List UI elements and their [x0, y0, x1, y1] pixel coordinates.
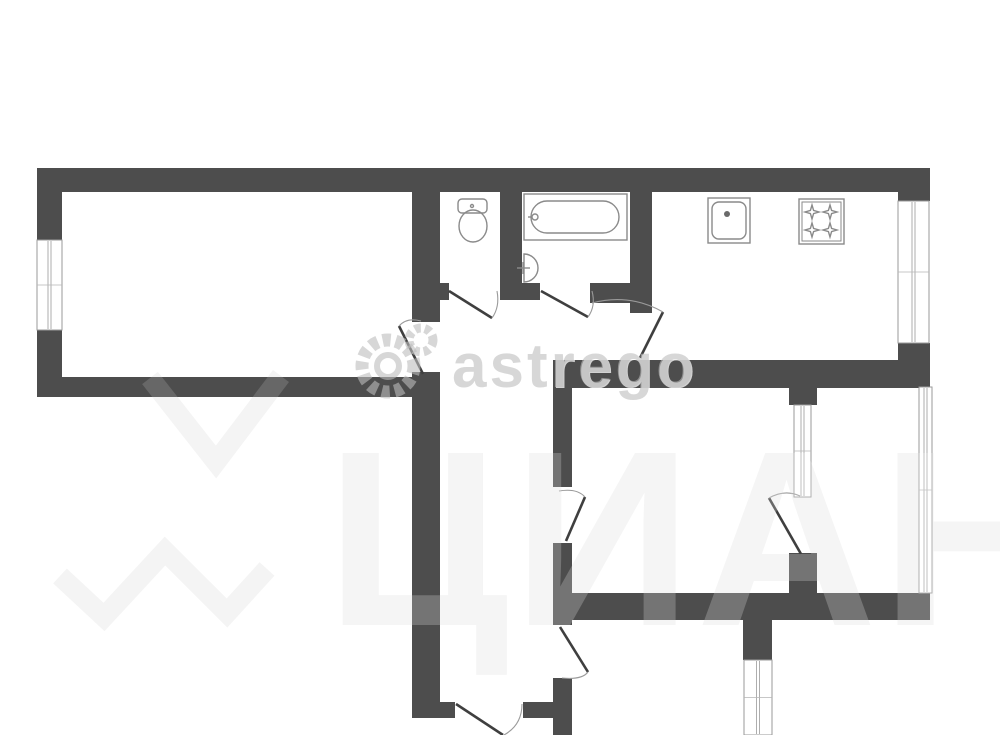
wall [440, 702, 455, 718]
wall [630, 192, 652, 313]
door-swing-arc [399, 320, 421, 326]
door-leaf [399, 326, 423, 374]
kitchen-sink-icon [708, 198, 750, 243]
floor-plan-image: ЦИАН ЦИАН astrego [0, 0, 1000, 735]
door-swing-arc [559, 490, 585, 497]
balcony-door [769, 493, 801, 554]
wall [500, 283, 540, 300]
window [794, 405, 811, 497]
kitchen-sink-icon [724, 211, 730, 217]
door-leaf [566, 497, 585, 541]
wall [553, 678, 572, 735]
wall [898, 343, 930, 388]
wall [789, 553, 817, 593]
window [898, 201, 929, 343]
wall [553, 360, 930, 388]
door-leaf [640, 312, 663, 358]
stove-icon [805, 223, 819, 237]
door-leaf [560, 627, 588, 672]
floor-plan-svg [0, 0, 1000, 735]
wall [553, 388, 572, 487]
wall [898, 168, 930, 201]
window [744, 660, 772, 735]
wall [412, 192, 440, 322]
kitchen-door [592, 300, 663, 358]
window [919, 387, 932, 593]
window [37, 240, 62, 330]
bathtub-icon [532, 214, 538, 220]
stove-icon [805, 205, 819, 219]
wall [743, 620, 772, 660]
door-leaf [769, 498, 801, 554]
middle-room-door [559, 490, 585, 541]
stove-icon [799, 199, 844, 244]
wall [37, 377, 412, 397]
wall [553, 593, 930, 620]
toilet-icon [471, 205, 474, 208]
wall [37, 168, 930, 192]
toilet-icon [459, 210, 487, 242]
corridor-south-door [456, 704, 522, 735]
bottom-room-door [560, 627, 588, 678]
stove-icon [802, 202, 841, 241]
bathtub-icon [524, 194, 627, 240]
toilet-icon [458, 199, 487, 213]
door-leaf [449, 291, 492, 318]
stove-icon [799, 199, 844, 244]
wall [789, 388, 817, 405]
door-leaf [456, 704, 503, 735]
door-swing-arc [492, 291, 498, 318]
door-swing-arc [562, 672, 588, 678]
toilet-icon [458, 199, 487, 242]
bath-door [541, 291, 593, 317]
door-swing-arc [504, 704, 522, 735]
stove-icon [823, 223, 837, 237]
wc-door [449, 291, 498, 318]
wall [412, 372, 440, 718]
wall [37, 192, 62, 240]
wall [440, 283, 449, 300]
door-leaf [541, 291, 588, 317]
left-room-door [399, 320, 423, 374]
stove-icon [823, 205, 837, 219]
bathtub-icon [531, 201, 619, 233]
kitchen-sink-icon [712, 202, 746, 239]
wall [523, 702, 553, 718]
